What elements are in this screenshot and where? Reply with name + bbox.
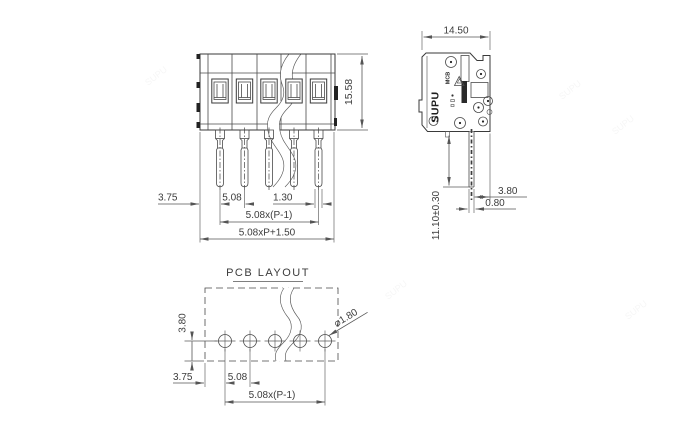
dim-total-width-text: 5.08xP+1.50 xyxy=(239,228,296,239)
dim-pin-length: 11.10±0.30 xyxy=(431,136,470,241)
wire-slot xyxy=(461,56,469,82)
dim-front-bottom: 3.75 5.08 1.30 5.08x(P-1) 5.08xP+1.50 xyxy=(158,132,334,243)
pcb-layout-title: PCB LAYOUT xyxy=(226,267,310,279)
brand-marking: SUPU xyxy=(430,91,442,122)
watermark-text: SUPU xyxy=(610,113,636,136)
certification-marks xyxy=(451,94,455,106)
terminal-window xyxy=(212,79,228,103)
dim-lead-offset-text: 3.75 xyxy=(158,193,178,204)
dim-row-offset: 3.80 xyxy=(178,313,218,370)
dim-front-height: 15.58 xyxy=(337,54,368,130)
pcb-hole xyxy=(215,331,236,352)
pcb-hole xyxy=(240,331,261,352)
dim-pcb-span-text: 5.08x(P-1) xyxy=(249,390,296,401)
dim-row-offset-text: 3.80 xyxy=(178,313,189,333)
watermark-text: SUPU xyxy=(143,64,169,87)
watermark-text: SUPU xyxy=(383,278,409,301)
dim-pin-width-text: 1.30 xyxy=(273,193,293,204)
dim-pcb-pitch-text: 5.08 xyxy=(228,372,248,383)
clamp-spring xyxy=(462,81,468,103)
series-marking: MCB xyxy=(446,72,452,85)
solder-pin xyxy=(290,128,299,191)
dim-front-height-text: 15.58 xyxy=(343,79,355,105)
dim-side-width-text: 14.50 xyxy=(443,26,468,37)
right-latch-tab xyxy=(334,86,338,100)
dim-rear-offset: 3.80 xyxy=(475,134,528,201)
dim-pin-thickness-text: 0.80 xyxy=(485,198,505,209)
dim-rear-offset-text: 3.80 xyxy=(498,186,518,197)
dim-pin-thickness: 0.80 xyxy=(456,198,516,209)
break-lines xyxy=(275,288,301,361)
break-lines xyxy=(267,54,307,187)
technical-drawing-page: SUPU SUPU SUPU SUPU SUPU xyxy=(0,0,680,440)
dim-pin-length-text: 11.10±0.30 xyxy=(431,190,442,240)
terminal-window xyxy=(310,79,326,103)
terminal-block-drawing: SUPU SUPU SUPU SUPU SUPU xyxy=(0,0,680,440)
dim-hole-diameter-text: ⌀1.80 xyxy=(332,307,360,330)
terminal-window xyxy=(236,79,252,103)
side-solder-pin xyxy=(469,129,474,213)
solder-pin xyxy=(216,128,225,191)
pcb-layout: PCB LAYOUT 3.80 3.75 xyxy=(173,267,368,406)
dim-pitch-text: 5.08 xyxy=(222,193,242,204)
housing-pocket xyxy=(471,83,488,98)
solder-pin xyxy=(314,128,323,191)
terminal-window xyxy=(286,79,302,103)
dim-hole-diameter: ⌀1.80 xyxy=(323,302,367,335)
terminal-window xyxy=(261,79,277,103)
dim-side-width: 14.50 xyxy=(422,26,490,51)
side-view: SUPU MCB 14.50 xyxy=(419,26,527,241)
dim-edge-offset-text: 3.75 xyxy=(173,372,193,383)
watermark-text: SUPU xyxy=(623,298,649,321)
dim-span-text: 5.08x(P-1) xyxy=(246,210,293,221)
front-view: 15.58 3.75 5.08 1.30 5.08x(P-1) 5.08xP+1… xyxy=(158,54,368,243)
solder-pin xyxy=(240,128,249,191)
watermark-text: SUPU xyxy=(557,78,583,101)
dim-pcb-bottom: 3.75 5.08 5.08x(P-1) xyxy=(173,349,325,406)
